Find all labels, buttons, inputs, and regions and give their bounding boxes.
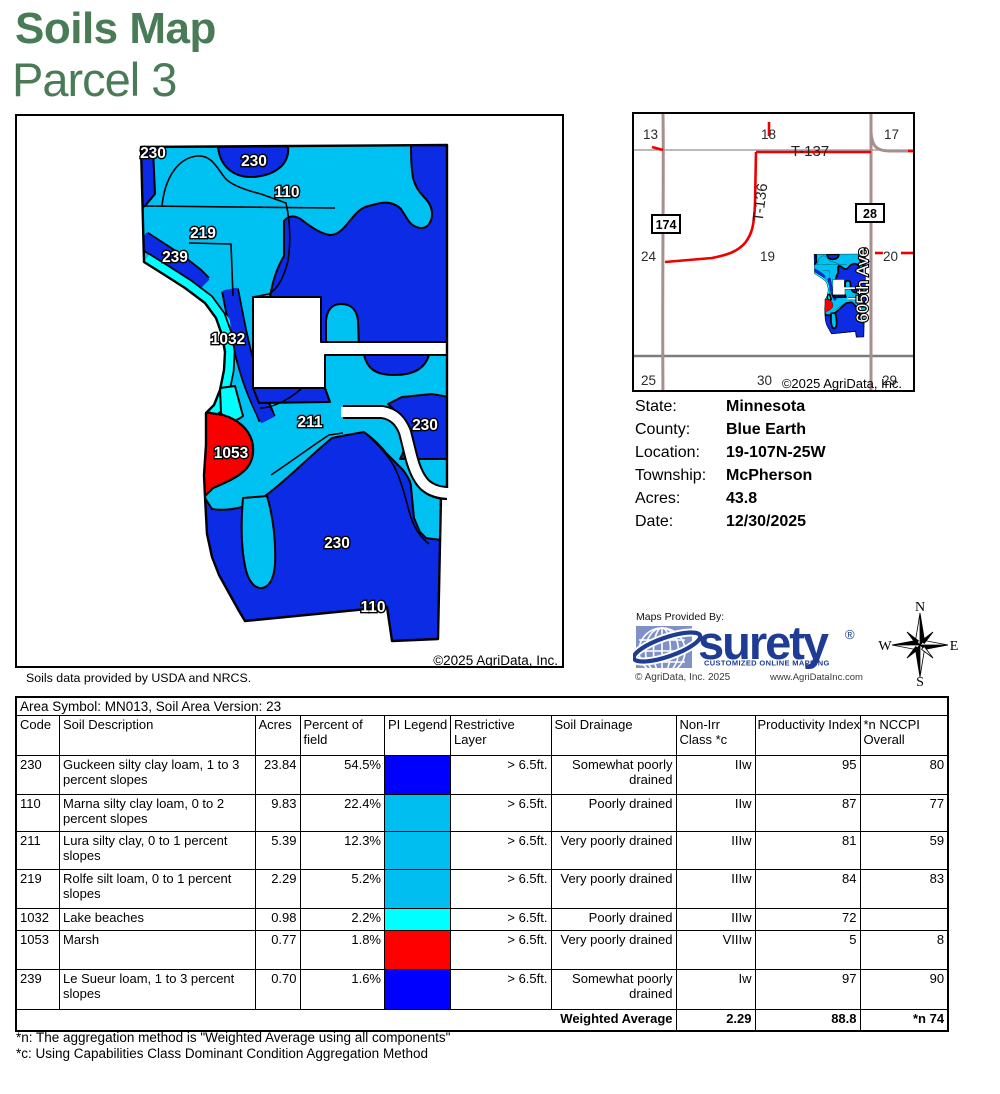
svg-text:E: E: [950, 639, 959, 654]
svg-text:CUSTOMIZED ONLINE MAPPING: CUSTOMIZED ONLINE MAPPING: [704, 659, 830, 668]
svg-text:28: 28: [863, 207, 877, 221]
svg-text:®: ®: [845, 627, 855, 642]
svg-text:W: W: [878, 639, 892, 654]
svg-text:N: N: [915, 600, 925, 615]
svg-text:© AgriData, Inc. 2025: © AgriData, Inc. 2025: [635, 672, 731, 683]
svg-text:13: 13: [643, 127, 658, 142]
svg-text:605th Ave: 605th Ave: [853, 247, 872, 322]
svg-text:17: 17: [884, 127, 899, 142]
svg-text:18: 18: [761, 127, 776, 142]
svg-text:www.AgriDataInc.com: www.AgriDataInc.com: [769, 672, 863, 683]
svg-text:S: S: [916, 675, 924, 690]
svg-text:174: 174: [656, 218, 677, 232]
svg-text:©2025 AgriData, Inc.: ©2025 AgriData, Inc.: [782, 376, 902, 390]
svg-text:25: 25: [641, 373, 656, 388]
svg-text:T-137: T-137: [791, 143, 829, 160]
svg-text:T-136: T-136: [750, 182, 772, 222]
svg-text:30: 30: [757, 373, 772, 388]
svg-text:24: 24: [641, 249, 657, 264]
svg-text:19: 19: [760, 249, 775, 264]
svg-text:20: 20: [883, 249, 898, 264]
